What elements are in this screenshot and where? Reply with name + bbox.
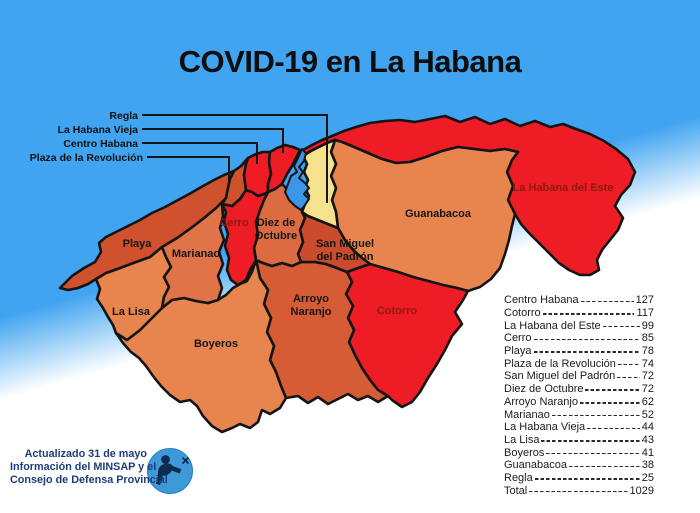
- case-row: Arroyo Naranjo62: [504, 396, 654, 409]
- region-label-cotorro: Cotorro: [377, 305, 418, 317]
- dash-leader: [581, 301, 634, 302]
- region-label-boyeros: Boyeros: [194, 338, 238, 350]
- dash-leader: [535, 478, 640, 479]
- region-label-diez-de-octubre: Octubre: [255, 230, 297, 242]
- case-row: Cotorro117: [504, 307, 654, 320]
- dash-leader: [534, 351, 640, 352]
- dash-leader: [546, 453, 639, 454]
- attribution-line-1: Actualizado 31 de mayo: [10, 448, 147, 461]
- dash-leader: [534, 339, 640, 340]
- case-count: 1029: [630, 485, 654, 497]
- region-label-cerro: Cerro: [219, 217, 249, 229]
- municipality-name: Playa: [504, 345, 532, 357]
- case-count: 127: [636, 294, 654, 306]
- dash-leader: [580, 402, 640, 403]
- municipality-name: La Lisa: [504, 434, 539, 446]
- region-label-marianao: Marianao: [172, 248, 221, 260]
- case-count: 38: [642, 459, 654, 471]
- case-count: 25: [642, 472, 654, 484]
- cases-list: Centro Habana127Cotorro117La Habana del …: [504, 294, 654, 497]
- attribution: Actualizado 31 de mayo Información del M…: [10, 448, 147, 488]
- case-row: Cerro85: [504, 332, 654, 345]
- dash-leader: [543, 313, 635, 314]
- case-count: 117: [636, 307, 654, 319]
- case-count: 41: [642, 447, 654, 459]
- region-regla: [302, 140, 338, 228]
- municipality-name: Centro Habana: [504, 294, 579, 306]
- region-label-playa: Playa: [123, 238, 153, 250]
- dash-leader: [541, 440, 639, 441]
- case-count: 44: [642, 421, 654, 433]
- region-label-la-lisa: La Lisa: [112, 306, 151, 318]
- case-row: Playa78: [504, 345, 654, 358]
- case-count: 85: [642, 332, 654, 344]
- case-row: Diez de Octubre72: [504, 383, 654, 396]
- attribution-line-2: Información del MINSAP y el: [10, 461, 147, 474]
- case-row: Centro Habana127: [504, 294, 654, 307]
- municipality-name: Plaza de la Revolución: [504, 358, 616, 370]
- callout-label-regla: Regla: [109, 110, 138, 122]
- attribution-line-3: Consejo de Defensa Provincial: [10, 474, 147, 487]
- municipality-name: Arroyo Naranjo: [504, 396, 578, 408]
- case-count: 72: [642, 383, 654, 395]
- case-row: La Lisa43: [504, 434, 654, 447]
- case-count: 43: [642, 434, 654, 446]
- case-row: Plaza de la Revolución74: [504, 357, 654, 370]
- municipality-name: Marianao: [504, 409, 550, 421]
- case-row: Regla25: [504, 472, 654, 485]
- municipality-name: Boyeros: [504, 447, 544, 459]
- municipality-name: Cotorro: [504, 307, 541, 319]
- dash-leader: [587, 428, 640, 429]
- case-row: La Habana Vieja44: [504, 421, 654, 434]
- logo-figure-head: [161, 455, 170, 464]
- covid-havana-infographic: ReglaLa Habana ViejaCentro HabanaPlaza d…: [0, 0, 700, 513]
- municipality-name: La Habana Vieja: [504, 421, 585, 433]
- case-count: 78: [642, 345, 654, 357]
- dash-leader: [569, 466, 640, 467]
- dash-leader: [529, 491, 627, 492]
- case-count: 99: [642, 320, 654, 332]
- callout-label-plaza-de-la-revolucion: Plaza de la Revolución: [30, 152, 143, 164]
- case-count: 74: [642, 358, 654, 370]
- region-label-arroyo-naranjo: Naranjo: [291, 306, 332, 318]
- case-row: Guanabacoa38: [504, 459, 654, 472]
- municipality-name: Cerro: [504, 332, 532, 344]
- case-row: Boyeros41: [504, 446, 654, 459]
- region-label-san-miguel-del-padron: San Miguel: [316, 238, 374, 250]
- municipality-name: Total: [504, 485, 527, 497]
- dash-leader: [618, 364, 640, 365]
- region-label-la-habana-del-este: La Habana del Este: [513, 182, 614, 194]
- case-row: San Miguel del Padrón72: [504, 370, 654, 383]
- dash-leader: [552, 415, 640, 416]
- dash-leader: [617, 377, 639, 378]
- municipality-name: Regla: [504, 472, 533, 484]
- case-count: 52: [642, 409, 654, 421]
- callout-label-la-habana-vieja: La Habana Vieja: [58, 124, 139, 136]
- dash-leader: [585, 389, 639, 390]
- municipality-name: Guanabacoa: [504, 459, 567, 471]
- region-label-diez-de-octubre: Diez de: [257, 217, 296, 229]
- callout-label-centro-habana: Centro Habana: [63, 138, 138, 150]
- region-label-arroyo-naranjo: Arroyo: [293, 293, 329, 305]
- region-label-san-miguel-del-padron: del Padrón: [317, 251, 374, 263]
- municipality-name: Diez de Octubre: [504, 383, 583, 395]
- municipality-name: San Miguel del Padrón: [504, 370, 615, 382]
- municipality-name: La Habana del Este: [504, 320, 601, 332]
- case-row: Marianao52: [504, 408, 654, 421]
- region-label-guanabacoa: Guanabacoa: [405, 208, 472, 220]
- dash-leader: [603, 326, 640, 327]
- case-count: 62: [642, 396, 654, 408]
- page-title: COVID-19 en La Habana: [0, 44, 700, 80]
- case-count: 72: [642, 370, 654, 382]
- case-row-total: Total1029: [504, 484, 654, 497]
- case-row: La Habana del Este99: [504, 319, 654, 332]
